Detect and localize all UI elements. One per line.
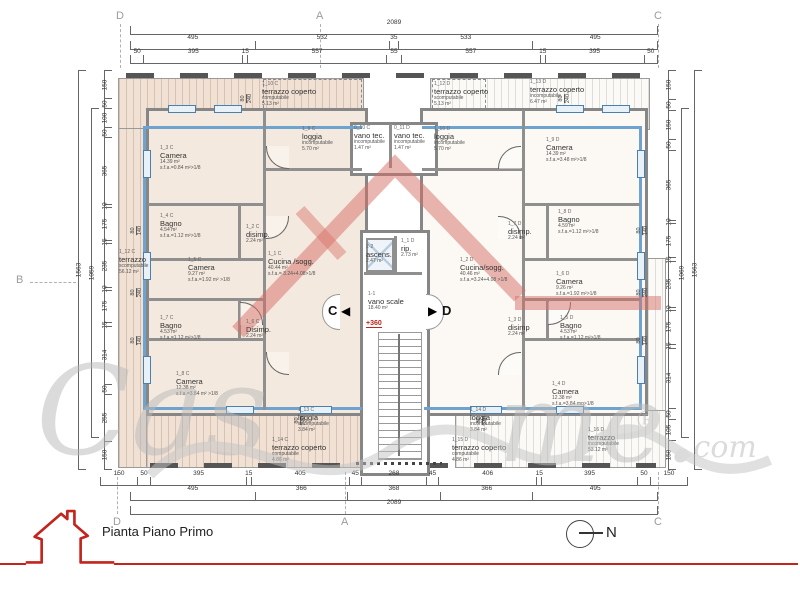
- window: [143, 252, 151, 280]
- dim-value: 255: [102, 412, 109, 423]
- wall: [263, 168, 362, 171]
- grid-axis-d: D: [116, 10, 124, 22]
- dim-value: 314: [666, 373, 673, 384]
- window: [637, 150, 645, 178]
- window-dim: 80140: [130, 226, 143, 235]
- window: [602, 105, 630, 113]
- dim-value: 50: [666, 102, 673, 109]
- dim-value: 2089: [387, 499, 401, 506]
- dim-value: 175: [666, 235, 673, 246]
- dim-value: 15: [245, 470, 252, 477]
- dim-value: 50: [102, 100, 109, 107]
- window: [637, 356, 645, 384]
- dim-value: 405: [295, 470, 306, 477]
- window: [470, 406, 502, 414]
- dim-value: 50: [666, 410, 673, 417]
- dim-value: 15: [242, 48, 249, 55]
- dim-value: 175: [102, 301, 109, 312]
- window-dim: 80140: [130, 336, 143, 345]
- dim-right-total: 1563: [694, 70, 702, 470]
- grid-axis-line: [30, 282, 76, 283]
- dim-right-sub: 1069: [681, 108, 689, 438]
- floor-plan-canvas: C ◀ ▶ D +360 Cas me. ® .com Pianta Piano…: [0, 0, 800, 600]
- window-dim: 80240: [558, 94, 571, 103]
- dim-value: 50: [140, 470, 147, 477]
- wall: [263, 110, 266, 410]
- dim-value: 495: [187, 34, 198, 41]
- dim-value: 495: [590, 34, 601, 41]
- dim-value: 100: [102, 113, 109, 124]
- grid-axis-a: A: [341, 516, 348, 528]
- apartment-c-body: [146, 108, 368, 416]
- terrace-band-bottom-left: [146, 410, 362, 468]
- dim-value: 45: [352, 470, 359, 477]
- dim-value: 495: [590, 485, 601, 492]
- dim-value: 406: [482, 470, 493, 477]
- wall: [522, 110, 525, 410]
- wall: [523, 258, 640, 261]
- wall: [148, 203, 265, 206]
- grid-axis-a: A: [316, 10, 323, 22]
- wall: [238, 203, 241, 261]
- section-arrow-left-icon: ◀: [341, 304, 350, 318]
- window: [556, 105, 584, 113]
- stair-rail: [398, 334, 400, 456]
- dim-value: 150: [114, 470, 125, 477]
- dim-top-detail: 5039515557555571539550: [130, 55, 658, 64]
- dim-value: 235: [666, 279, 673, 290]
- window: [214, 105, 242, 113]
- dim-value: 35: [390, 34, 397, 41]
- dim-value: 1563: [692, 263, 699, 277]
- dim-value: 150: [664, 470, 675, 477]
- dim-value: 50: [666, 142, 673, 149]
- dim-value: 395: [188, 48, 199, 55]
- window: [637, 252, 645, 280]
- title-baseline-right: [114, 563, 798, 565]
- section-arrow-right-icon: ▶: [428, 304, 437, 318]
- dim-value: 395: [584, 470, 595, 477]
- dim-value: 150: [102, 450, 109, 461]
- dim-value: 150: [102, 79, 109, 90]
- dim-value: 366: [481, 485, 492, 492]
- dim-value: 50: [647, 48, 654, 55]
- north-needle: [579, 532, 603, 534]
- grid-axis-line: [120, 24, 121, 68]
- north-label: N: [606, 524, 617, 541]
- window-dim: 80240: [240, 94, 253, 103]
- dim-value: 2089: [387, 19, 401, 26]
- dim-value: 495: [187, 485, 198, 492]
- dim-value: 50: [134, 48, 141, 55]
- dim-value: 557: [312, 48, 323, 55]
- window: [143, 150, 151, 178]
- dim-value: 175: [666, 322, 673, 333]
- window-dim: 80140: [636, 226, 649, 235]
- wall: [148, 338, 265, 341]
- dim-left-total: 1563: [78, 70, 86, 470]
- section-label-d: D: [442, 303, 451, 318]
- window: [143, 356, 151, 384]
- dim-value: 105: [666, 424, 673, 435]
- dim-value: 1059: [89, 266, 96, 280]
- dim-bottom-total: 2089: [130, 506, 658, 515]
- wall: [148, 298, 265, 301]
- sill-row-top: [126, 73, 656, 78]
- window: [556, 406, 584, 414]
- dim-value: 150: [666, 120, 673, 131]
- dim-value: 150: [666, 80, 673, 91]
- grid-axis-c: C: [654, 10, 662, 22]
- elevator-shaft: [366, 238, 394, 272]
- apartment-d-body: [420, 108, 648, 416]
- window-dim: 80240: [130, 288, 143, 297]
- level-marker: +360: [366, 320, 382, 328]
- dim-value: 1069: [679, 266, 686, 280]
- plan-title: Pianta Piano Primo: [102, 524, 213, 539]
- dim-value: 314: [102, 350, 109, 361]
- dim-value: 50: [640, 470, 647, 477]
- window: [226, 406, 254, 414]
- dim-left-col: 1505010050365101751523510175153145025515…: [104, 70, 112, 470]
- window: [300, 406, 332, 414]
- dim-value: 50: [102, 386, 109, 393]
- grid-axis-line: [658, 24, 659, 68]
- title-baseline-left: [0, 563, 26, 565]
- dim-value: 150: [666, 449, 673, 460]
- entrance-dotted-line: [356, 462, 442, 465]
- window-dim: 80240: [294, 416, 307, 425]
- dim-value: 557: [465, 48, 476, 55]
- dim-value: 268: [388, 470, 399, 477]
- dim-value: 368: [389, 485, 400, 492]
- dim-value: 50: [102, 129, 109, 136]
- wall: [523, 203, 640, 206]
- dim-value: 45: [429, 470, 436, 477]
- dim-value: 395: [193, 470, 204, 477]
- window-dim: 80140: [636, 336, 649, 345]
- railing-top-right: [422, 126, 642, 129]
- dim-value: 55: [390, 48, 397, 55]
- railing-top-left: [146, 126, 362, 129]
- dim-value: 395: [589, 48, 600, 55]
- wall: [148, 258, 265, 261]
- dim-value: 15: [536, 470, 543, 477]
- section-label-c: C: [328, 303, 337, 318]
- wall: [523, 338, 640, 341]
- dim-value: 365: [102, 166, 109, 177]
- dim-value: 175: [102, 218, 109, 229]
- grid-axis-b: B: [16, 274, 23, 286]
- dim-value: 533: [460, 34, 471, 41]
- wall: [394, 236, 397, 272]
- wall: [546, 203, 549, 261]
- window-dim: 80240: [476, 416, 489, 425]
- wall: [389, 124, 392, 168]
- stair-flight: [378, 332, 422, 460]
- dim-right-col: 1505015050365101751523510175153145010515…: [668, 70, 676, 470]
- dim-value: 366: [296, 485, 307, 492]
- dim-left-sub: 1059: [91, 108, 99, 438]
- wall: [523, 298, 640, 301]
- dim-value: 15: [539, 48, 546, 55]
- dim-value: 235: [102, 260, 109, 271]
- wall: [364, 272, 422, 275]
- railing-bottom-right: [424, 407, 640, 410]
- grid-axis-c: C: [654, 516, 662, 528]
- dim-value: 532: [317, 34, 328, 41]
- dim-value: 365: [666, 180, 673, 191]
- window-dim: 80240: [636, 288, 649, 297]
- window: [168, 105, 196, 113]
- north-circle-icon: [566, 520, 594, 548]
- dim-value: 1563: [76, 263, 83, 277]
